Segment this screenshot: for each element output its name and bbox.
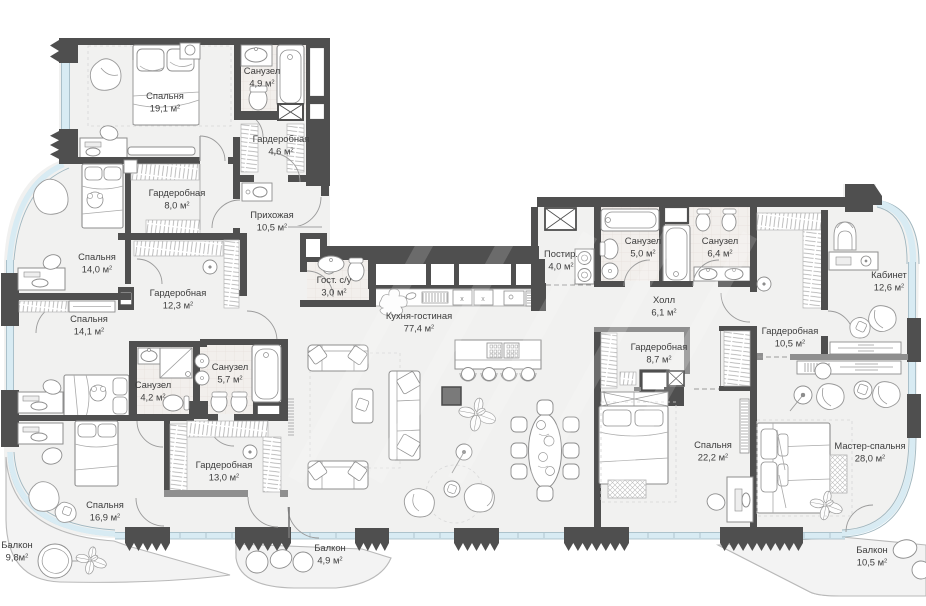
svg-text:4,0 м2: 4,0 м2	[548, 261, 573, 272]
svg-text:Санузел: Санузел	[212, 361, 249, 372]
svg-text:Гардеробная: Гардеробная	[149, 187, 206, 198]
svg-text:5,0 м2: 5,0 м2	[630, 248, 655, 259]
svg-text:10,5 м2: 10,5 м2	[775, 338, 806, 349]
svg-text:Гардеробная: Гардеробная	[631, 341, 688, 352]
svg-text:x: x	[460, 296, 464, 303]
svg-text:9,8м2: 9,8м2	[6, 552, 29, 563]
svg-text:Гардеробная: Гардеробная	[762, 325, 819, 336]
svg-text:Кабинет: Кабинет	[871, 269, 907, 280]
svg-text:Гардеробная: Гардеробная	[253, 133, 310, 144]
svg-text:Спальня: Спальня	[78, 251, 116, 262]
svg-text:4,2 м2: 4,2 м2	[140, 392, 165, 403]
svg-text:Прихожая: Прихожая	[250, 209, 293, 220]
svg-text:Холл: Холл	[653, 294, 675, 305]
svg-text:Мастер-спальня: Мастер-спальня	[834, 440, 905, 451]
svg-text:Спальня: Спальня	[70, 313, 108, 324]
svg-text:3,0 м2: 3,0 м2	[321, 287, 346, 298]
svg-text:Гост. с/у: Гост. с/у	[317, 274, 352, 285]
svg-text:Санузел: Санузел	[625, 235, 662, 246]
svg-text:22,2 м2: 22,2 м2	[698, 452, 729, 463]
svg-text:Санузел: Санузел	[702, 235, 739, 246]
svg-text:13,0 м2: 13,0 м2	[209, 472, 240, 483]
svg-text:4,9 м2: 4,9 м2	[249, 78, 274, 89]
svg-text:Постир.: Постир.	[544, 248, 578, 259]
svg-text:12,3 м2: 12,3 м2	[163, 300, 194, 311]
svg-text:Гардеробная: Гардеробная	[196, 459, 253, 470]
svg-text:Балкон: Балкон	[856, 544, 887, 555]
svg-text:Кухня-гостиная: Кухня-гостиная	[386, 310, 452, 321]
svg-text:Спальня: Спальня	[694, 439, 732, 450]
svg-text:10,5 м2: 10,5 м2	[257, 222, 288, 233]
svg-text:28,0 м2: 28,0 м2	[855, 453, 886, 464]
svg-text:16,9 м2: 16,9 м2	[90, 512, 121, 523]
svg-text:8,7 м2: 8,7 м2	[646, 354, 671, 365]
svg-text:Санузел: Санузел	[135, 379, 172, 390]
svg-text:6,4 м2: 6,4 м2	[707, 248, 732, 259]
svg-text:12,6 м2: 12,6 м2	[874, 282, 905, 293]
svg-text:Балкон: Балкон	[1, 539, 32, 550]
svg-text:Санузел: Санузел	[244, 65, 281, 76]
svg-text:14,0 м2: 14,0 м2	[82, 264, 113, 275]
svg-text:Спальня: Спальня	[146, 90, 184, 101]
svg-text:Гардеробная: Гардеробная	[150, 287, 207, 298]
svg-text:4,9 м2: 4,9 м2	[317, 555, 342, 566]
svg-text:10,5 м2: 10,5 м2	[857, 557, 888, 568]
svg-text:6,1 м2: 6,1 м2	[651, 307, 676, 318]
svg-text:19,1 м2: 19,1 м2	[150, 103, 181, 114]
svg-text:Балкон: Балкон	[314, 542, 345, 553]
svg-text:Спальня: Спальня	[86, 499, 124, 510]
svg-text:4,6 м2: 4,6 м2	[268, 146, 293, 157]
svg-text:8,0 м2: 8,0 м2	[164, 200, 189, 211]
svg-text:77,4 м2: 77,4 м2	[404, 323, 435, 334]
svg-text:14,1 м2: 14,1 м2	[74, 326, 105, 337]
svg-text:5,7 м2: 5,7 м2	[217, 374, 242, 385]
